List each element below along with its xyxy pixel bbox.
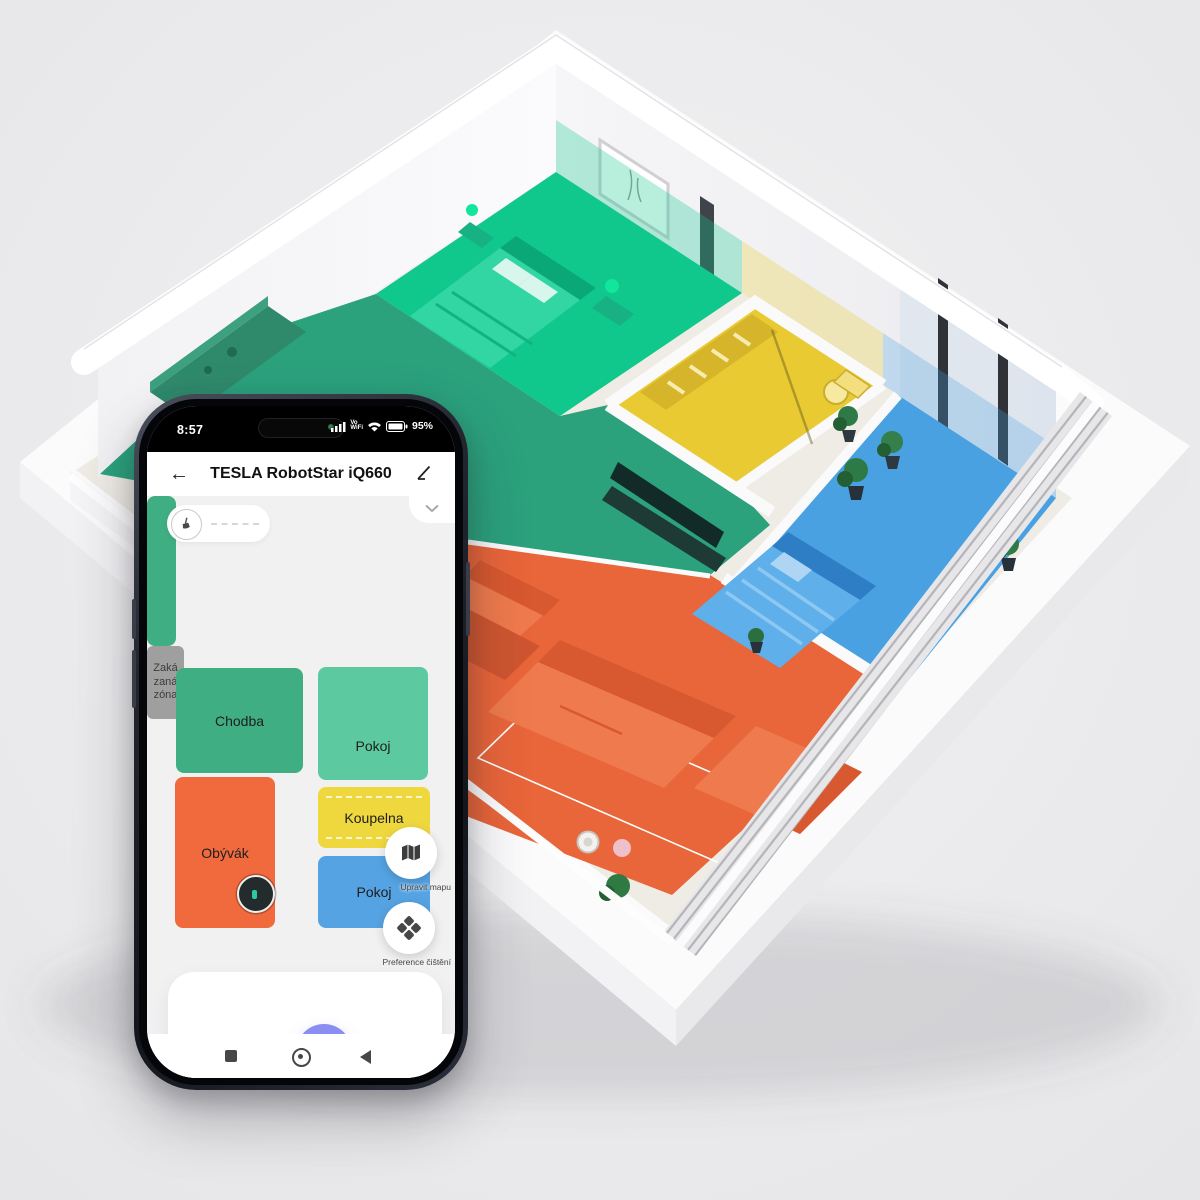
smartphone: 8:57 VoWiFi 95%: [134, 394, 468, 1090]
robot-led: [252, 890, 257, 899]
no-go-label-line: zaná: [154, 676, 178, 690]
edit-map-label: Upravit mapu: [311, 882, 451, 892]
room-label: Chodba: [215, 713, 264, 729]
nav-back-button[interactable]: [360, 1050, 371, 1064]
vowifi-icon: VoWiFi: [350, 421, 363, 431]
wifi-icon: [367, 421, 382, 432]
room-label: Obývák: [201, 845, 248, 861]
status-placeholder: [211, 523, 259, 525]
map-icon: [400, 842, 422, 864]
no-go-label-line: Zaká: [153, 662, 177, 676]
signal-icon: [331, 421, 346, 432]
power-button[interactable]: [466, 562, 470, 636]
page-title: TESLA RobotStar iQ660: [147, 465, 455, 483]
cleaning-preferences-label: Preference čištění: [311, 957, 451, 967]
chevron-down-icon: [425, 504, 439, 513]
no-go-label-line: zóna: [154, 689, 178, 703]
volume-down-button[interactable]: [132, 650, 136, 708]
android-nav-bar: [147, 1034, 455, 1078]
app-body: Chodba Pokoj Koupelna Pokoj Obývák: [147, 496, 455, 1078]
robot-avatar: [171, 509, 202, 540]
preferences-diamonds-icon: [397, 916, 421, 940]
home-dot: [298, 1054, 303, 1059]
clock: 8:57: [177, 423, 203, 437]
sweep-line: [326, 796, 422, 798]
room-label: Koupelna: [344, 810, 403, 826]
home-button[interactable]: [292, 1048, 311, 1067]
map-room-chodba[interactable]: Chodba: [176, 668, 303, 773]
cleaning-preferences-button[interactable]: [383, 902, 435, 954]
map-room-pokoj-1[interactable]: Pokoj: [318, 667, 428, 780]
edit-map-button[interactable]: [385, 827, 437, 879]
robot-status-pill[interactable]: [167, 505, 270, 542]
status-bar: 8:57 VoWiFi 95%: [147, 406, 455, 452]
phone-screen: 8:57 VoWiFi 95%: [147, 406, 455, 1078]
robot-vacuum-marker[interactable]: [237, 875, 275, 913]
edit-pencil-icon[interactable]: [415, 464, 433, 482]
broom-icon: [179, 517, 193, 531]
volume-up-button[interactable]: [132, 599, 136, 639]
battery-icon: [386, 421, 408, 432]
room-label: Pokoj: [355, 738, 390, 754]
page: { "app": { "status_bar": { "time": "8:57…: [0, 0, 1200, 1200]
app-header: ← TESLA RobotStar iQ660: [147, 452, 455, 496]
battery-percent: 95%: [412, 420, 433, 432]
recents-button[interactable]: [225, 1050, 237, 1062]
